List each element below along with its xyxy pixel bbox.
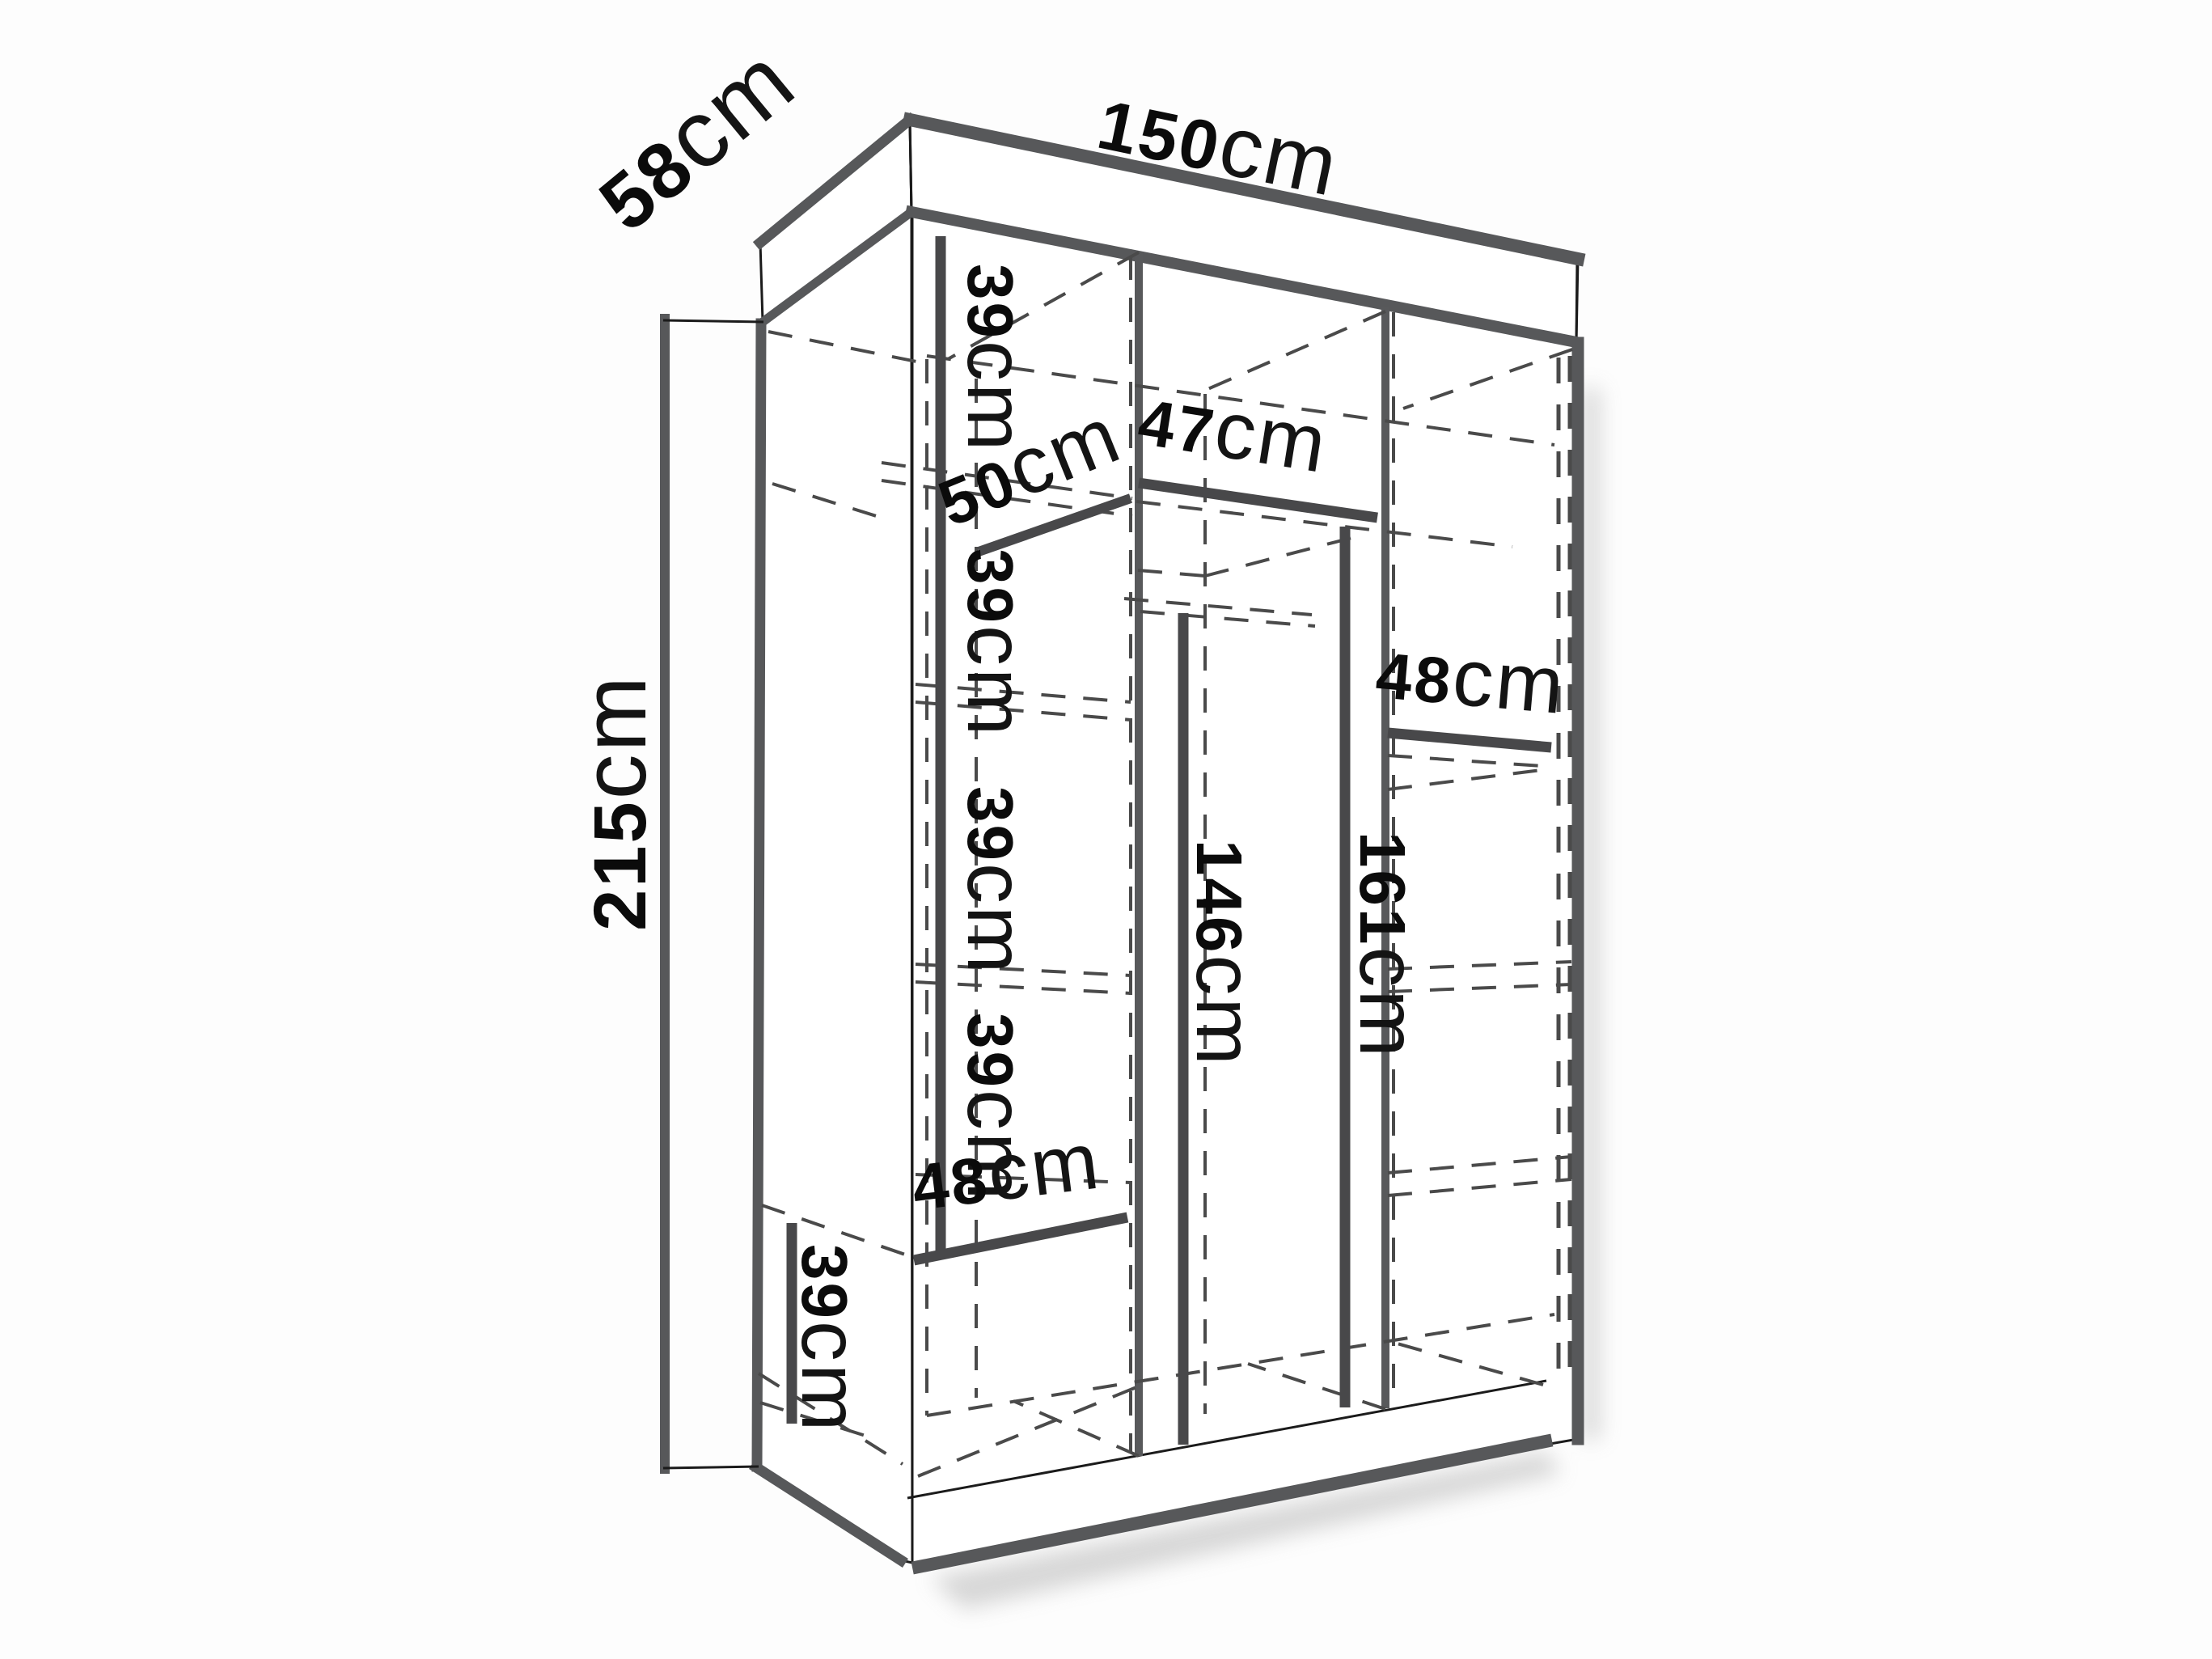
label-depth-58: 58cm <box>574 26 815 251</box>
cornice-right-end-edge <box>1576 260 1577 342</box>
dim-tick-215-bottom <box>663 1466 759 1468</box>
cornice-left-end-edge <box>910 121 911 212</box>
label-height-215: 215cm <box>564 674 665 931</box>
dim-tick-215-top <box>663 320 763 322</box>
wardrobe-body <box>756 120 1578 1567</box>
wardrobe-dimension-diagram: 150cm 58cm 215cm 39cm 50cm 39cm 47cm 48c… <box>0 0 2212 1659</box>
back-left-edge <box>757 324 761 1466</box>
